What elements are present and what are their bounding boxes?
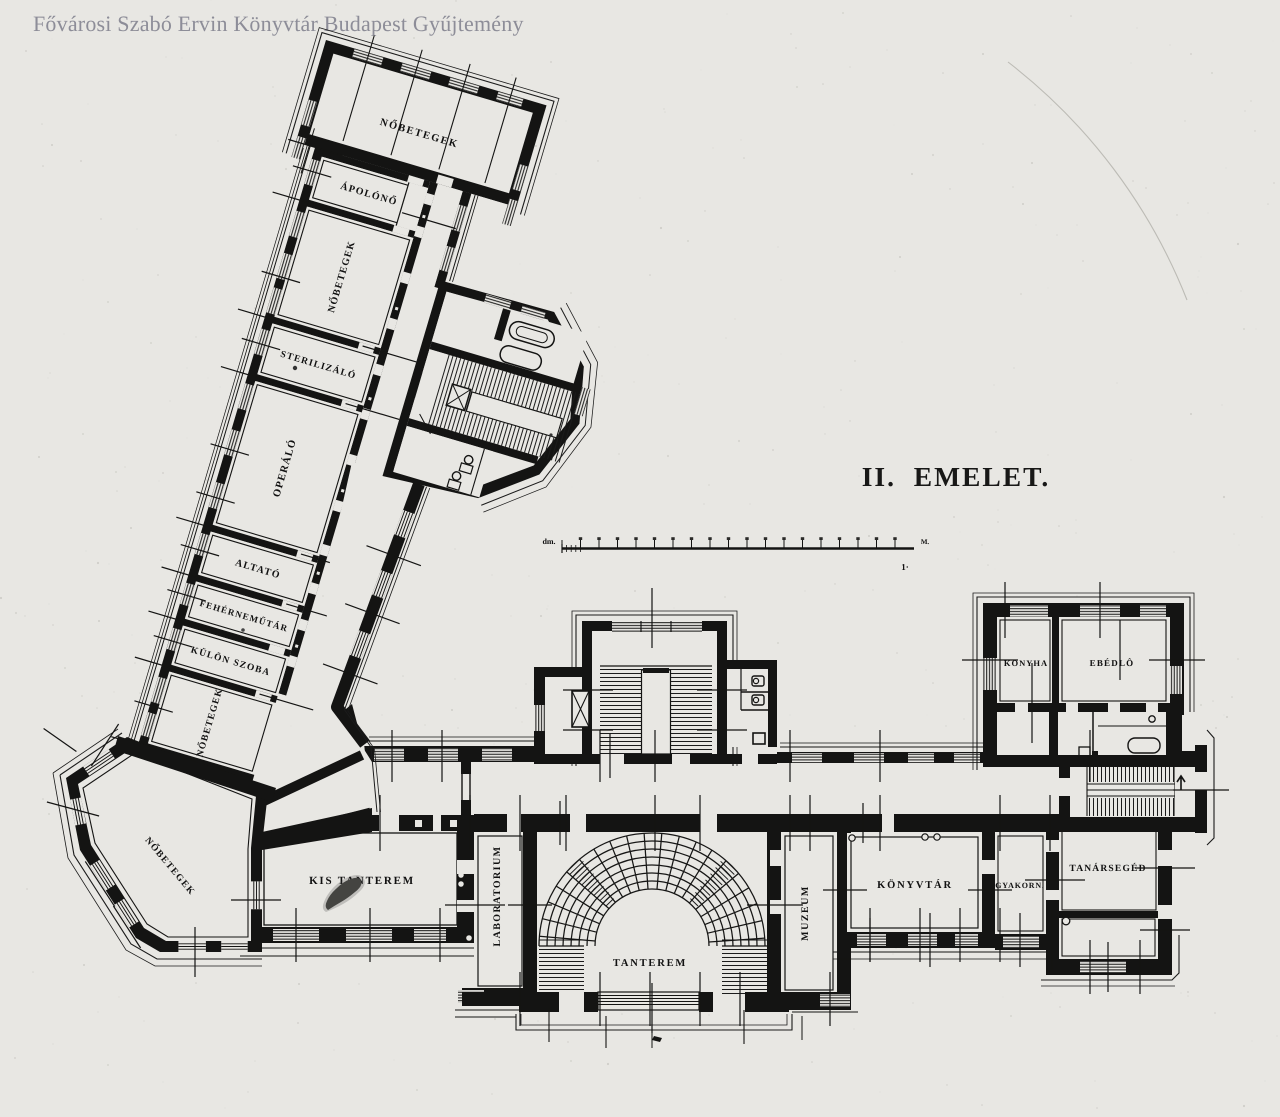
- svg-text:MUZEUM: MUZEUM: [800, 885, 811, 941]
- svg-text:M.: M.: [921, 538, 930, 546]
- svg-text:GYAKORN.: GYAKORN.: [995, 881, 1044, 890]
- svg-text:LABORATORIUM: LABORATORIUM: [492, 846, 503, 947]
- svg-text:dm.: dm.: [542, 537, 555, 546]
- svg-text:II. EMELET.: II. EMELET.: [862, 461, 1051, 492]
- svg-text:Fővárosi Szabó Ervin Könyvtár: Fővárosi Szabó Ervin Könyvtár Budapest G…: [33, 11, 524, 36]
- svg-text:KÖNYVTÁR: KÖNYVTÁR: [877, 878, 953, 891]
- svg-text:TANTEREM: TANTEREM: [613, 958, 687, 969]
- svg-text:EBÉDLÔ: EBÉDLÔ: [1090, 658, 1135, 668]
- svg-text:1·: 1·: [901, 562, 909, 572]
